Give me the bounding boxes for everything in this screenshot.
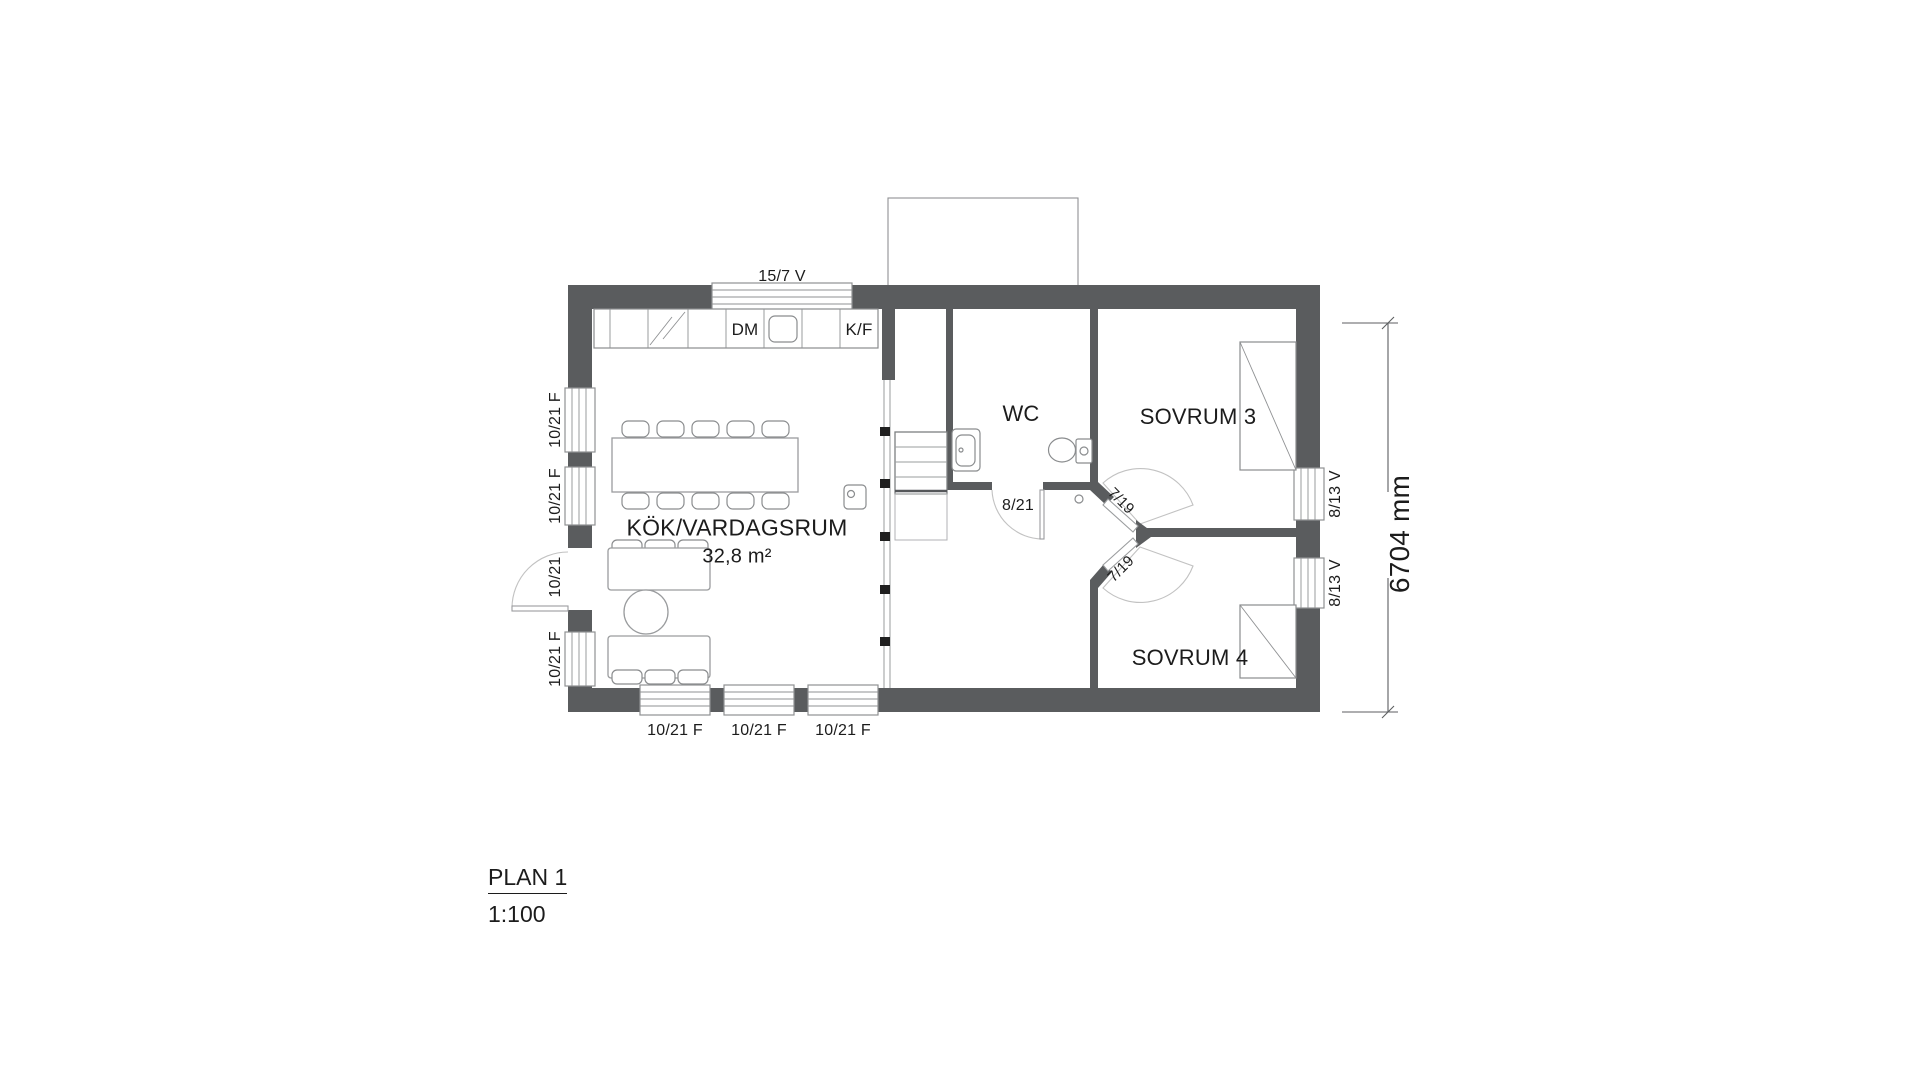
interior-walls (882, 309, 1296, 688)
wc-door-label: 8/21 (1002, 497, 1034, 515)
stairs (895, 432, 947, 540)
dimension-label: 6704 mm (1384, 475, 1416, 593)
plan-title: PLAN 1 (488, 864, 567, 894)
sofa-upper (608, 548, 710, 590)
dishwasher-label: DM (732, 320, 759, 340)
left-window-2 (565, 467, 595, 525)
plan-scale: 1:100 (488, 901, 567, 928)
room-label-wc: WC (1002, 401, 1039, 427)
entrance-door-label: 10/21 (547, 556, 565, 597)
bottom-window-2 (724, 685, 794, 715)
floor-plan-canvas (0, 0, 1920, 1080)
left-window-1 (565, 388, 595, 452)
room-area-kitchen-living: 32,8 m² (702, 546, 771, 569)
stair-railing (880, 380, 890, 688)
bottom-window-1 (640, 685, 710, 715)
top-window-15-7 (712, 283, 852, 311)
dormer-outline (888, 198, 1078, 287)
left-window-1-label: 10/21 F (547, 392, 565, 448)
top-window-label: 15/7 V (758, 268, 805, 286)
bottom-window-3-label: 10/21 F (815, 722, 871, 740)
wc-sink (952, 429, 980, 471)
room-label-bedroom3: SOVRUM 3 (1140, 404, 1257, 430)
room-label-kitchen-living: KÖK/VARDAGSRUM (627, 515, 848, 542)
left-window-3 (565, 632, 595, 686)
dining-set (612, 421, 798, 509)
stove (844, 485, 866, 509)
kitchen-sink (769, 316, 797, 342)
sofa-group (608, 540, 710, 684)
right-window-2-label: 8/13 V (1327, 559, 1345, 606)
left-window-2-label: 10/21 F (547, 468, 565, 524)
right-window-2 (1294, 558, 1324, 608)
fridge-freezer-label: K/F (845, 320, 872, 340)
bottom-window-1-label: 10/21 F (647, 722, 703, 740)
left-window-3-label: 10/21 F (547, 631, 565, 687)
bottom-window-2-label: 10/21 F (731, 722, 787, 740)
title-block: PLAN 1 1:100 (488, 864, 567, 928)
coffee-table (624, 590, 668, 634)
toilet (1049, 438, 1093, 463)
bed-bedroom4 (1240, 605, 1296, 678)
room-label-bedroom4: SOVRUM 4 (1132, 645, 1249, 671)
right-window-1-label: 8/13 V (1327, 470, 1345, 517)
right-window-1 (1294, 468, 1324, 520)
floor-plan-page: 15/7 V 10/21 F 10/21 F 10/21 10/21 F 10/… (0, 0, 1920, 1080)
bottom-window-3 (808, 685, 878, 715)
door-stop (1075, 495, 1083, 503)
